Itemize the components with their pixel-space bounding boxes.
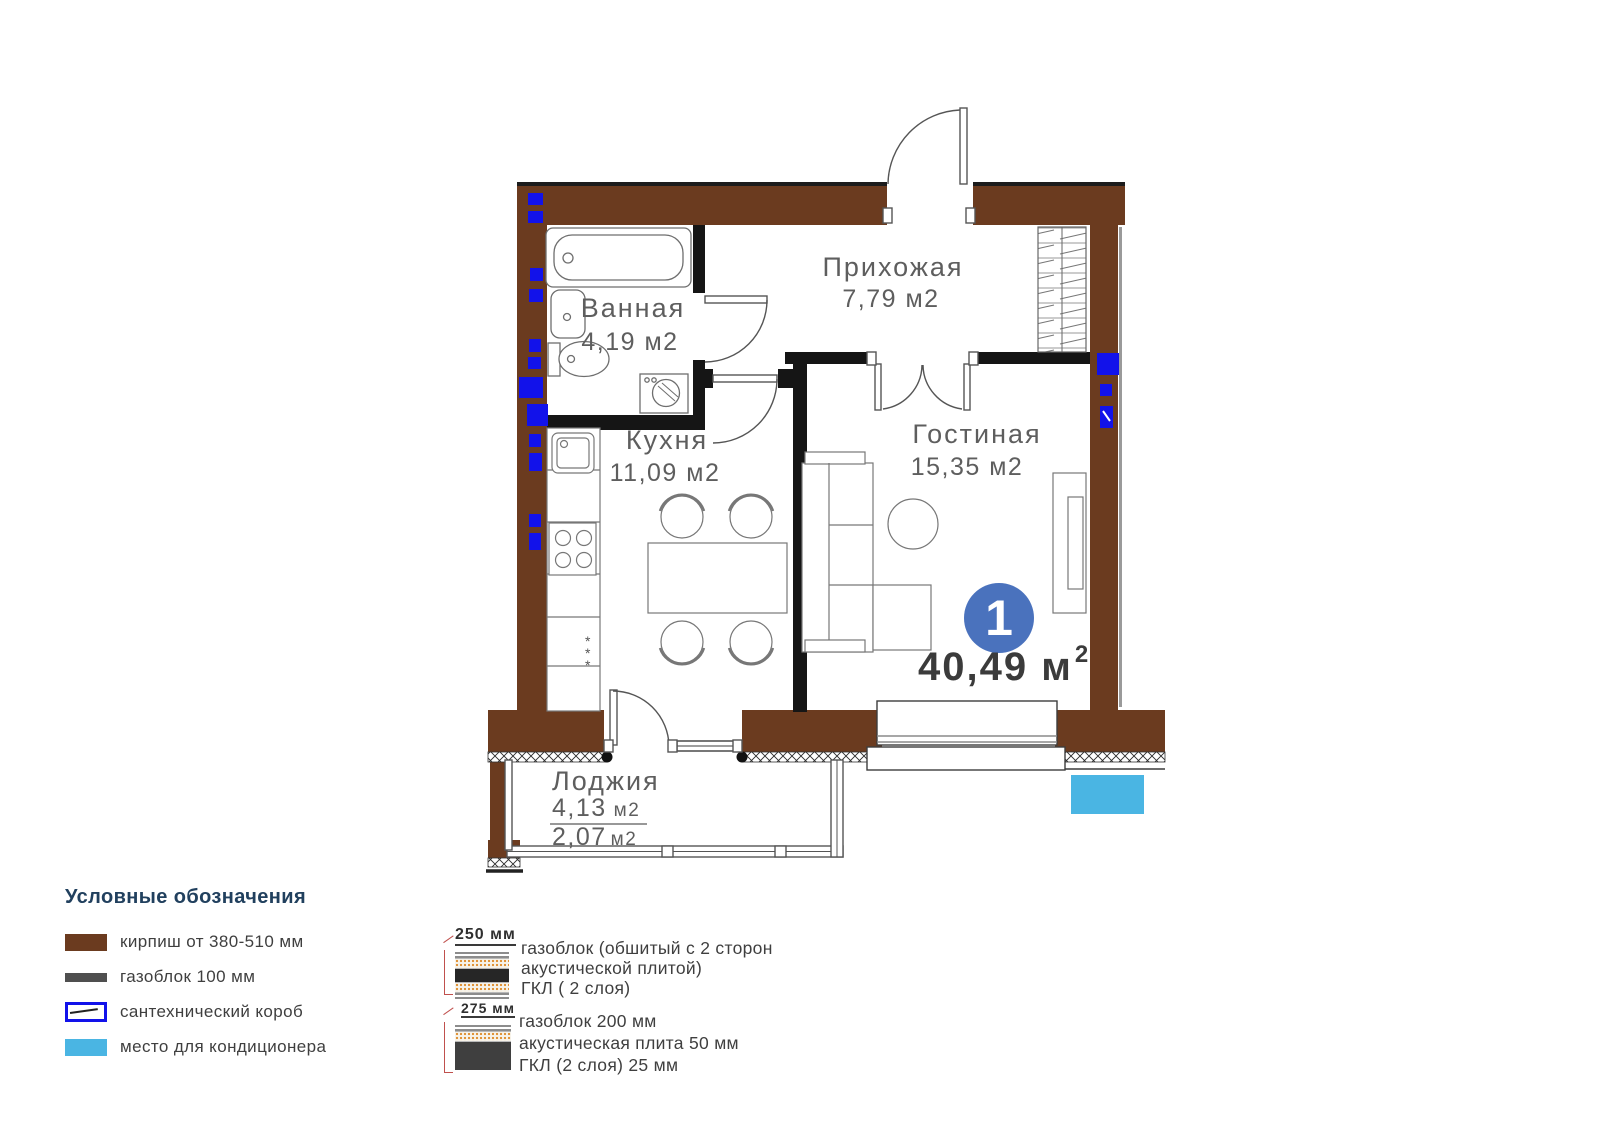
- living-furniture: [802, 452, 1086, 652]
- room-area-loggia-half: 2,07м2: [552, 823, 637, 851]
- kitchen-door-leaf: [713, 375, 777, 382]
- total-area-value: 40,49 м2: [918, 641, 1090, 689]
- legend-item-sanitary-box: сантехнический короб: [65, 1003, 326, 1021]
- entry-door-leaf: [960, 108, 967, 184]
- stove: [549, 523, 596, 575]
- badge-number: 1: [985, 590, 1013, 646]
- wall-section-250-text: газоблок (обшитый с 2 сторон акустическо…: [521, 938, 821, 998]
- room-area-bathroom: 4,19 м2: [581, 328, 678, 356]
- room-label-living: Гостиная: [912, 419, 1041, 449]
- kitchen-door-swing: [713, 379, 777, 443]
- room-area-hallway: 7,79 м2: [842, 285, 939, 313]
- loggia-door-leaf: [610, 690, 617, 745]
- junction-dots: [602, 752, 748, 763]
- section-bracket: [444, 1022, 453, 1073]
- room-label-kitchen: Кухня: [626, 425, 708, 455]
- legend-title: Условные обозначения: [65, 886, 326, 909]
- legend-item-gasblock: газоблок 100 мм: [65, 968, 326, 986]
- coffee-table: [888, 499, 938, 549]
- living-door-leaf-left: [875, 364, 881, 410]
- wall-section-250: 250 мм газоблок (обшитый с 2 сторон акус…: [455, 926, 516, 999]
- wall-section-250-swatch: [455, 952, 509, 999]
- room-label-hallway: Прихожая: [822, 252, 963, 282]
- toilet-tank: [548, 343, 560, 376]
- ac-place-rect: [1071, 775, 1144, 814]
- legend-item-brick: кирпиш от 380-510 мм: [65, 933, 326, 951]
- bathroom-door-leaf: [705, 296, 767, 303]
- living-door-leaf-right: [964, 364, 970, 410]
- living-door-swing-left: [883, 365, 922, 409]
- brick-swatch: [65, 934, 107, 951]
- wall-edge-lines: [517, 182, 1125, 186]
- room-area-kitchen: 11,09 м2: [610, 459, 721, 487]
- bathroom-door-swing: [705, 300, 767, 362]
- wall-section-275-thickness: 275 мм: [461, 1000, 515, 1018]
- section-bracket: [444, 950, 453, 995]
- room-label-bathroom: Ванная: [581, 293, 685, 323]
- wall-section-275: 275 мм газоблок 200 мм акустическая плит…: [455, 1000, 515, 1070]
- dining-table: [648, 543, 787, 613]
- legend-item-ac-place: место для кондиционера: [65, 1038, 326, 1056]
- entry-door-swing: [888, 110, 960, 184]
- room-area-living: 15,35 м2: [911, 453, 1024, 481]
- wall-section-275-text: газоблок 200 мм акустическая плита 50 мм…: [519, 1010, 839, 1076]
- wall-section-250-thickness: 250 мм: [455, 926, 516, 946]
- room-label-loggia: Лоджия: [552, 766, 660, 796]
- room-area-loggia-full: 4,13м2: [552, 794, 640, 822]
- floorplan-page: * * * Прихожая 7,79 м2 Ванная 4,19 м2 Ку…: [0, 0, 1600, 1131]
- living-door-swing-right: [923, 365, 962, 409]
- legend: Условные обозначения кирпиш от 380-510 м…: [65, 886, 326, 1073]
- chair: [730, 621, 772, 663]
- chair: [661, 496, 703, 538]
- gasblock-swatch: [65, 973, 107, 982]
- loggia-door-swing: [613, 691, 669, 746]
- right-wall-outer-line: [1119, 227, 1122, 707]
- sofa: [802, 463, 873, 652]
- sanitary-box-swatch: [65, 1002, 107, 1022]
- wardrobe: [1038, 227, 1086, 352]
- ac-place-swatch: [65, 1039, 107, 1056]
- sofa-chaise: [873, 585, 931, 650]
- chair: [661, 621, 703, 663]
- chair: [730, 496, 772, 538]
- svg-text:*: *: [585, 657, 591, 673]
- wall-section-275-swatch: [455, 1025, 511, 1070]
- tv: [1068, 497, 1083, 589]
